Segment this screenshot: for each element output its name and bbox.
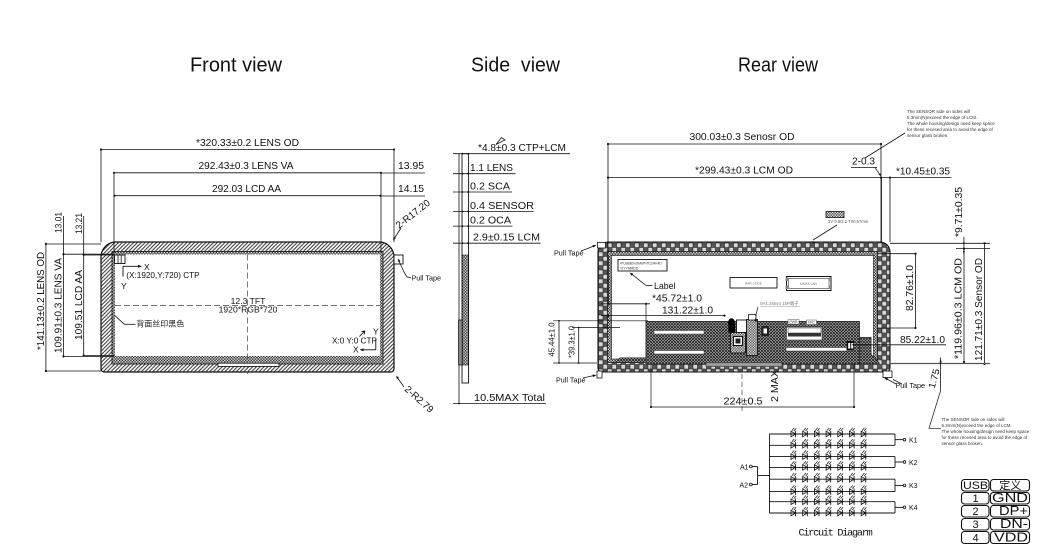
svg-text:5.3mm(N)exceed the edge of LCM: 5.3mm(N)exceed the edge of LCM. bbox=[942, 423, 1012, 428]
svg-text:292.43±0.3 LENS VA: 292.43±0.3 LENS VA bbox=[199, 161, 294, 172]
svg-text:A2: A2 bbox=[740, 483, 749, 490]
svg-text:sensor glass broken.: sensor glass broken. bbox=[942, 441, 984, 446]
svg-text:Pull Tape: Pull Tape bbox=[896, 381, 925, 390]
svg-text:85.22±1.0: 85.22±1.0 bbox=[900, 335, 945, 346]
svg-text:*9.71±0.35: *9.71±0.35 bbox=[954, 186, 965, 237]
svg-text:14.15: 14.15 bbox=[398, 184, 424, 195]
svg-text:*10.45±0.35: *10.45±0.35 bbox=[896, 167, 950, 178]
svg-text:背面丝印黑色: 背面丝印黑色 bbox=[136, 318, 184, 328]
svg-text:*39.3±1.0: *39.3±1.0 bbox=[567, 326, 577, 358]
svg-text:82.76±1.0: 82.76±1.0 bbox=[905, 265, 916, 311]
svg-text:PWR: PWR bbox=[790, 320, 798, 324]
svg-text:K4: K4 bbox=[909, 505, 918, 512]
svg-text:131.22±1.0: 131.22±1.0 bbox=[662, 305, 713, 316]
svg-text:292.03 LCD AA: 292.03 LCD AA bbox=[212, 184, 281, 195]
svg-text:for these recesed area to avoi: for these recesed area to avoid the edge… bbox=[907, 127, 994, 132]
svg-text:Circuit Diagarm: Circuit Diagarm bbox=[799, 528, 873, 540]
svg-text:Front view: Front view bbox=[190, 54, 282, 77]
svg-text:Pull Tape: Pull Tape bbox=[554, 249, 583, 258]
svg-text:1920*RGB*720: 1920*RGB*720 bbox=[219, 305, 278, 315]
svg-text:Y: Y bbox=[121, 281, 127, 291]
svg-text:2: 2 bbox=[972, 506, 978, 518]
svg-text:Rear view: Rear view bbox=[738, 54, 818, 77]
svg-text:3V 9.8/3.2 T#0.57mm: 3V 9.8/3.2 T#0.57mm bbox=[828, 219, 869, 224]
svg-text:109.91±0.3 LENS VA: 109.91±0.3 LENS VA bbox=[54, 258, 65, 353]
svg-text:Pull Tape: Pull Tape bbox=[556, 376, 585, 385]
svg-text:VDD: VDD bbox=[994, 530, 1028, 545]
svg-text:2 MAX: 2 MAX bbox=[770, 370, 781, 402]
svg-text:0H1.25mm 15P端子: 0H1.25mm 15P端子 bbox=[760, 300, 799, 307]
svg-text:5.3mm(N)exceed the edge of LCM: 5.3mm(N)exceed the edge of LCM. bbox=[907, 115, 977, 120]
svg-text:MMXX LAN: MMXX LAN bbox=[800, 282, 817, 286]
svg-text:224±0.5: 224±0.5 bbox=[724, 397, 763, 408]
svg-text:YtYYMMDD: YtYYMMDD bbox=[620, 267, 639, 271]
svg-text:BAR CODE: BAR CODE bbox=[745, 282, 762, 286]
svg-text:*320.33±0.2 LENS OD: *320.33±0.2 LENS OD bbox=[196, 138, 299, 149]
svg-text:13.21: 13.21 bbox=[74, 213, 85, 234]
svg-text:*299.43±0.3 LCM OD: *299.43±0.3 LCM OD bbox=[695, 166, 793, 177]
svg-text:109.51 LCD AA: 109.51 LCD AA bbox=[74, 270, 85, 340]
svg-text:1.1 LENS: 1.1 LENS bbox=[470, 163, 513, 174]
svg-text:FPC: FPC bbox=[808, 321, 815, 325]
svg-text:0.4 SENSOR: 0.4 SENSOR bbox=[470, 201, 534, 212]
svg-text:The SENSOR side on sides will: The SENSOR side on sides will bbox=[907, 109, 970, 114]
svg-text:45.44±1.0: 45.44±1.0 bbox=[547, 322, 557, 356]
svg-text:sensor glass broken.: sensor glass broken. bbox=[907, 133, 949, 138]
svg-text:USB: USB bbox=[963, 480, 988, 492]
svg-text:Y: Y bbox=[373, 327, 379, 337]
svg-text:Side view: Side view bbox=[471, 54, 560, 77]
svg-text:Pull Tape: Pull Tape bbox=[412, 274, 441, 283]
svg-text:2.9±0.15 LCM: 2.9±0.15 LCM bbox=[473, 233, 540, 244]
svg-text:*141.13±0.2 LENS OD: *141.13±0.2 LENS OD bbox=[36, 252, 47, 350]
svg-text:10.5MAX Total: 10.5MAX Total bbox=[474, 393, 545, 404]
svg-text:K2: K2 bbox=[909, 460, 918, 467]
svg-text:13.95: 13.95 bbox=[398, 161, 424, 172]
svg-text:3: 3 bbox=[972, 519, 978, 531]
svg-text:The whole housing/design need: The whole housing/design need keep space bbox=[942, 429, 1030, 434]
svg-text:K1: K1 bbox=[909, 437, 918, 444]
svg-text:0.2 OCA: 0.2 OCA bbox=[470, 216, 511, 227]
svg-text:(X:1920,Y:720) CTP: (X:1920,Y:720) CTP bbox=[126, 271, 200, 280]
svg-text:2-0.3: 2-0.3 bbox=[852, 157, 875, 168]
svg-text:13.01: 13.01 bbox=[54, 212, 65, 233]
svg-text:4*U3BBXvXM6PVfC2HK4D: 4*U3BBXvXM6PVfC2HK4D bbox=[620, 261, 662, 265]
svg-text:The SENSOR side on sides will: The SENSOR side on sides will bbox=[942, 417, 1005, 422]
svg-text:*45.72±1.0: *45.72±1.0 bbox=[652, 294, 702, 305]
svg-text:4: 4 bbox=[972, 533, 978, 545]
svg-text:*4.8±0.3 CTP+LCM: *4.8±0.3 CTP+LCM bbox=[478, 143, 566, 154]
svg-text:for these recesed area to avoi: for these recesed area to avoid the edge… bbox=[942, 435, 1029, 440]
svg-text:The whole housing/design need: The whole housing/design need keep space bbox=[907, 121, 995, 126]
svg-text:121.71±0.3 Sensor OD: 121.71±0.3 Sensor OD bbox=[974, 258, 985, 361]
svg-text:X: X bbox=[353, 345, 359, 355]
svg-text:K3: K3 bbox=[909, 483, 918, 490]
svg-text:A1: A1 bbox=[740, 465, 749, 472]
svg-text:0.2 SCA: 0.2 SCA bbox=[470, 182, 510, 193]
svg-text:Label: Label bbox=[654, 281, 676, 291]
svg-text:300.03±0.3 Senosr OD: 300.03±0.3 Senosr OD bbox=[690, 132, 795, 143]
svg-text:*119.96±0.3 LCM OD: *119.96±0.3 LCM OD bbox=[954, 258, 965, 359]
svg-text:1: 1 bbox=[972, 493, 978, 505]
